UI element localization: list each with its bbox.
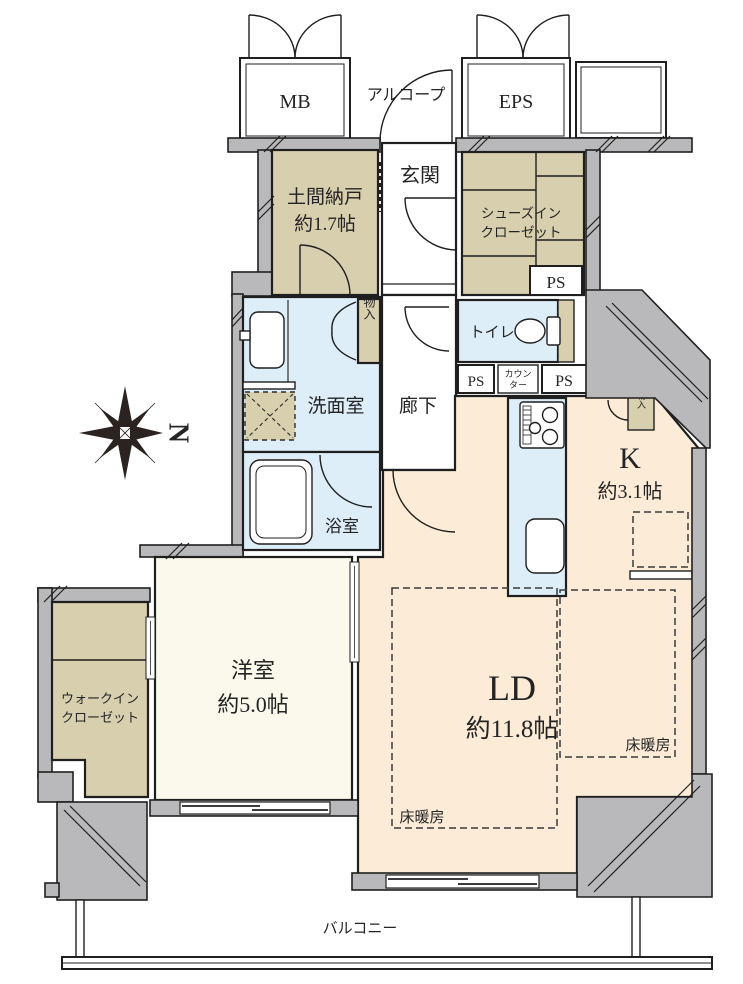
alcove-label: アルコープ: [367, 86, 446, 104]
hallway-label: 廊下: [399, 395, 437, 417]
alcove-area: アルコープ: [367, 86, 446, 104]
wall-west-top: [140, 545, 243, 557]
balcony-post-left: [76, 900, 84, 957]
toilet-label: トイレ: [469, 325, 514, 341]
counter-box: カウン ター: [498, 365, 538, 393]
kitchen-size: 約3.1帖: [598, 480, 663, 503]
ps-box-1: PS: [458, 365, 494, 393]
floor-heating-label-2: 床暖房: [399, 809, 444, 826]
kitchen-counter: [508, 398, 566, 596]
wall-wic-bottom-step: [38, 772, 73, 802]
floor-heating-label-1: 床暖房: [625, 737, 670, 754]
washroom-storage-label: 物入: [362, 296, 376, 320]
washroom-label: 洗面室: [307, 395, 364, 417]
floor-plan: MB アルコープ EPS 土間納戸 約1.7帖 玄関: [0, 0, 743, 984]
ps-label-1: PS: [468, 374, 485, 390]
counter-label-1: カウン: [504, 369, 531, 379]
shoes-closet-line2: クローゼット: [481, 225, 562, 240]
room-washroom: 物入 洗面室: [240, 296, 380, 452]
shoes-closet-line1: シューズイン: [481, 206, 561, 221]
bathroom-label: 浴室: [325, 517, 359, 536]
ps-label-2: PS: [555, 373, 573, 390]
room-toilet: トイレ: [458, 300, 574, 362]
vanity-sink: [250, 312, 284, 368]
wic-line2: クローゼット: [61, 710, 139, 725]
stove: [520, 402, 564, 448]
ps-box-2: PS: [542, 365, 587, 393]
counter-label-2: ター: [509, 380, 527, 390]
window-western: [180, 802, 330, 814]
genkan-label: 玄関: [400, 164, 440, 187]
eps-label: EPS: [499, 91, 533, 113]
room-bathroom: 浴室: [243, 452, 380, 550]
wall-step: [232, 272, 274, 296]
vanity-counter: [243, 382, 295, 389]
room-hallway: 廊下: [382, 295, 456, 470]
ps-box-top: PS: [530, 266, 582, 295]
balcony-label: バルコニー: [323, 921, 398, 937]
washer-space: [245, 392, 295, 440]
wall-wic-left: [38, 588, 52, 778]
balcony-post-right: [632, 897, 640, 957]
room-genkan: 玄関: [380, 143, 456, 295]
mb-label: MB: [279, 91, 310, 113]
compass-north-label: N: [163, 423, 194, 443]
sliding-door-west-ld: [350, 562, 359, 662]
ld-size: 約11.8帖: [466, 715, 559, 743]
toilet-bowl: [515, 319, 545, 343]
bathtub: [250, 460, 312, 544]
window-ld: [386, 875, 539, 888]
sliding-door-wic: [146, 617, 155, 679]
kitchen-sink: [526, 519, 564, 573]
doma-storage-label: 土間納戸: [287, 186, 363, 208]
vanity-handle: [240, 331, 250, 340]
eps-box: EPS: [462, 58, 570, 142]
mb-box: MB: [240, 58, 350, 142]
wall-bottom-left: [45, 802, 147, 900]
utility-box: [576, 62, 666, 138]
western-room-size: 約5.0帖: [217, 692, 289, 717]
ps-label-top: PS: [547, 273, 566, 292]
western-room-label: 洋室: [231, 658, 275, 683]
room-western: 洋室 約5.0帖: [155, 557, 352, 800]
kitchen-shelf: [630, 571, 692, 579]
kitchen-label: K: [619, 442, 641, 475]
wall-wic-top: [38, 588, 150, 602]
doma-storage-size: 約1.7帖: [294, 213, 356, 235]
wall-sic-right: [586, 150, 600, 292]
wic-line1: ウォークイン: [61, 691, 139, 706]
floor-plan-svg: MB アルコープ EPS 土間納戸 約1.7帖 玄関: [0, 0, 743, 984]
toilet-tank: [547, 317, 560, 345]
room-doma-storage: 土間納戸 約1.7帖: [272, 150, 378, 295]
ld-label: LD: [488, 668, 536, 708]
